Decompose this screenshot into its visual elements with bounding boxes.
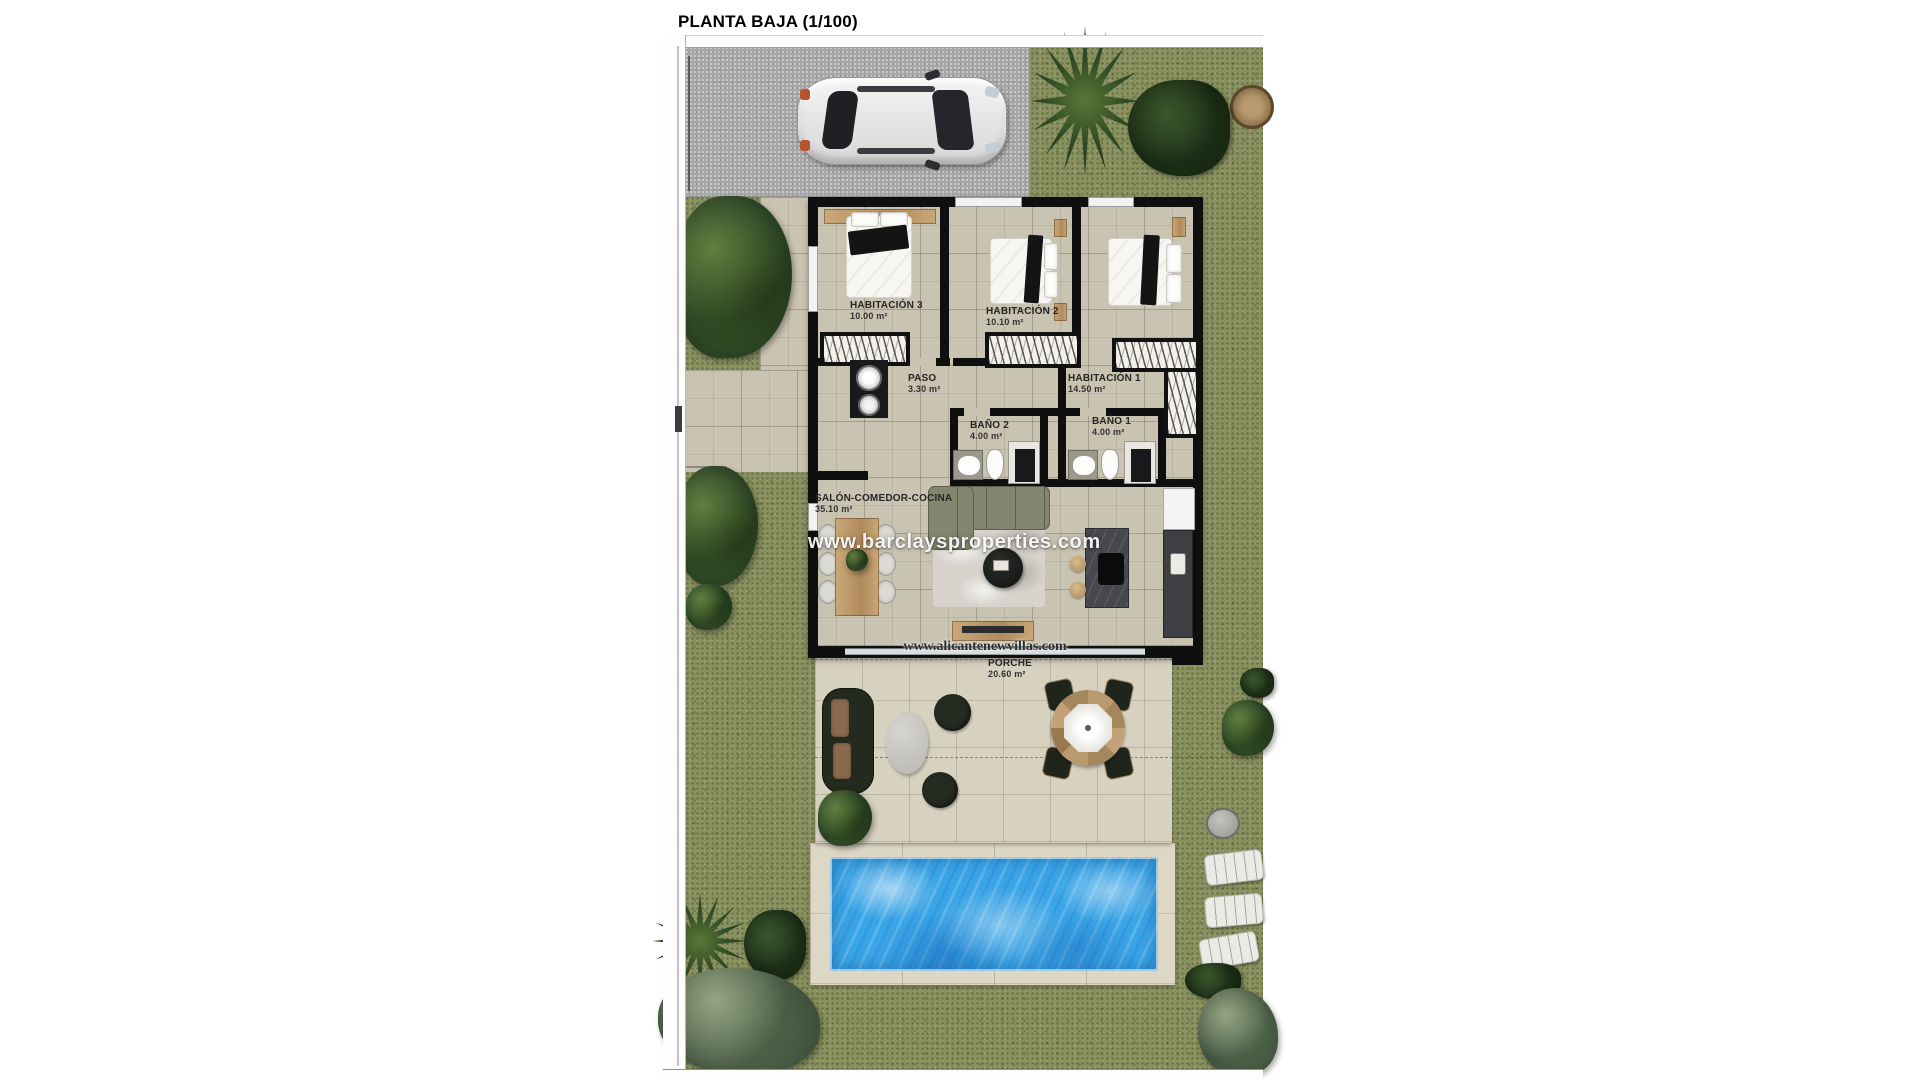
outdoor-pouf bbox=[934, 694, 971, 731]
hab1-pillow bbox=[1166, 274, 1182, 303]
tv bbox=[962, 626, 1024, 633]
car-windshield bbox=[931, 90, 974, 150]
room-area: 10.00 m² bbox=[850, 311, 923, 322]
room-name: HABITACIÓN 3 bbox=[850, 300, 923, 311]
bar-stool bbox=[1070, 582, 1086, 598]
bath2-sink bbox=[957, 455, 981, 476]
gate-post bbox=[675, 406, 682, 432]
sun-lounger bbox=[1204, 893, 1264, 929]
bath2-shower-tray bbox=[1015, 449, 1035, 482]
dining-chair bbox=[876, 552, 896, 576]
room-name: SALÓN-COMEDOR-COCINA bbox=[815, 493, 952, 504]
palm-tree-top-right bbox=[1030, 26, 1140, 176]
outdoor-pouf bbox=[922, 772, 958, 808]
hab2-wardrobe bbox=[985, 332, 1081, 368]
bush-small-right bbox=[1240, 668, 1274, 698]
bath1-shower-tray bbox=[1131, 449, 1151, 482]
door-gap-bath1 bbox=[1080, 408, 1106, 416]
room-label-paso: PASO 3.30 m² bbox=[908, 373, 940, 395]
room-area: 3.30 m² bbox=[908, 384, 940, 395]
room-area: 10.10 m² bbox=[986, 317, 1059, 328]
boundary-wall-top bbox=[668, 35, 1263, 48]
hab1-walkin-closet bbox=[1164, 368, 1200, 438]
window-hab3 bbox=[808, 246, 818, 312]
hab2-nightstand bbox=[1054, 219, 1067, 237]
outdoor-sofa bbox=[822, 688, 874, 794]
room-label-salon: SALÓN-COMEDOR-COCINA 35.10 m² bbox=[815, 493, 952, 515]
room-label-bano1: BAÑO 1 4.00 m² bbox=[1092, 416, 1131, 438]
bath2-toilet bbox=[986, 449, 1004, 480]
hab2-pillow bbox=[1044, 271, 1058, 298]
dryer bbox=[858, 394, 880, 416]
kitchen-counter bbox=[1163, 530, 1193, 638]
hab1-nightstand bbox=[1172, 217, 1186, 237]
hab1-wardrobe bbox=[1112, 338, 1200, 372]
swimming-pool bbox=[830, 857, 1158, 971]
room-label-porche: PORCHE 20.60 m² bbox=[988, 658, 1032, 680]
wall-hall-hab1 bbox=[1058, 362, 1066, 486]
car-side-window-bottom bbox=[857, 148, 935, 154]
outdoor-coffee-table bbox=[886, 712, 928, 774]
room-label-hab1: HABITACIÓN 1 14.50 m² bbox=[1068, 373, 1141, 395]
bush-dark-top-right bbox=[1128, 80, 1230, 176]
door-gap-bath2 bbox=[964, 408, 990, 416]
kitchen-sink bbox=[1170, 553, 1186, 575]
window-hab1 bbox=[1088, 197, 1134, 207]
bath1-toilet bbox=[1101, 449, 1119, 480]
coffee-table-book bbox=[993, 560, 1009, 571]
stone-side-table bbox=[1208, 810, 1238, 837]
room-name: HABITACIÓN 2 bbox=[986, 306, 1059, 317]
car-top-view bbox=[797, 77, 1005, 163]
room-name: PORCHE bbox=[988, 658, 1032, 669]
room-label-hab2: HABITACIÓN 2 10.10 m² bbox=[986, 306, 1059, 328]
tree-small-right bbox=[1222, 700, 1274, 756]
room-area: 4.00 m² bbox=[970, 431, 1009, 442]
room-name: HABITACIÓN 1 bbox=[1068, 373, 1141, 384]
outdoor-sofa-cushion bbox=[831, 699, 849, 737]
boundary-fence-line bbox=[677, 46, 679, 1066]
bath1-sink bbox=[1072, 455, 1096, 476]
plan-title: PLANTA BAJA (1/100) bbox=[678, 12, 858, 32]
porch-dashed-middle bbox=[815, 757, 1263, 758]
room-name: BAÑO 1 bbox=[1092, 416, 1131, 427]
wall-corner-bottom-right bbox=[1172, 646, 1203, 665]
fridge bbox=[1163, 488, 1195, 530]
room-label-bano2: BAÑO 2 4.00 m² bbox=[970, 420, 1009, 442]
boundary-wall-left bbox=[663, 35, 686, 1072]
umbrella-pole bbox=[1085, 725, 1091, 731]
hab1-pillow bbox=[1166, 244, 1182, 273]
room-area: 14.50 m² bbox=[1068, 384, 1141, 395]
hab2-pillow bbox=[1044, 243, 1058, 270]
room-area: 4.00 m² bbox=[1092, 427, 1131, 438]
wall-bath2-right bbox=[1040, 408, 1048, 486]
cooktop bbox=[1098, 553, 1124, 585]
car-taillight-bottom bbox=[800, 140, 810, 151]
hab3-pillow bbox=[851, 212, 879, 227]
room-name: BAÑO 2 bbox=[970, 420, 1009, 431]
watermark-primary: www.barclaysproperties.com bbox=[808, 531, 1098, 554]
window-hab2 bbox=[955, 197, 1022, 207]
bar-stool bbox=[1070, 556, 1086, 572]
rattan-planter bbox=[1230, 85, 1274, 129]
car-side-window-top bbox=[857, 86, 935, 92]
room-area: 20.60 m² bbox=[988, 669, 1032, 680]
wall-salon-top-left bbox=[808, 471, 868, 480]
car-taillight-top bbox=[800, 89, 810, 100]
boundary-wall-bottom bbox=[663, 1069, 1263, 1080]
watermark-secondary: www.alicantenewvillas.com bbox=[875, 639, 1095, 655]
room-area: 35.10 m² bbox=[815, 504, 952, 515]
side-terrace-tiles bbox=[685, 370, 808, 472]
wall-hab3-hab2 bbox=[940, 207, 949, 362]
dining-chair bbox=[876, 580, 896, 604]
room-name: PASO bbox=[908, 373, 936, 384]
hab2-bed bbox=[990, 238, 1052, 304]
driveway-edge-line bbox=[688, 56, 690, 191]
floor-plan-canvas: PLANTA BAJA (1/100) bbox=[0, 0, 1920, 1080]
room-label-hab3: HABITACIÓN 3 10.00 m² bbox=[850, 300, 923, 322]
bush-large-bottom-right bbox=[1198, 988, 1278, 1076]
outdoor-sofa-cushion bbox=[833, 743, 851, 779]
washing-machine bbox=[856, 365, 882, 391]
